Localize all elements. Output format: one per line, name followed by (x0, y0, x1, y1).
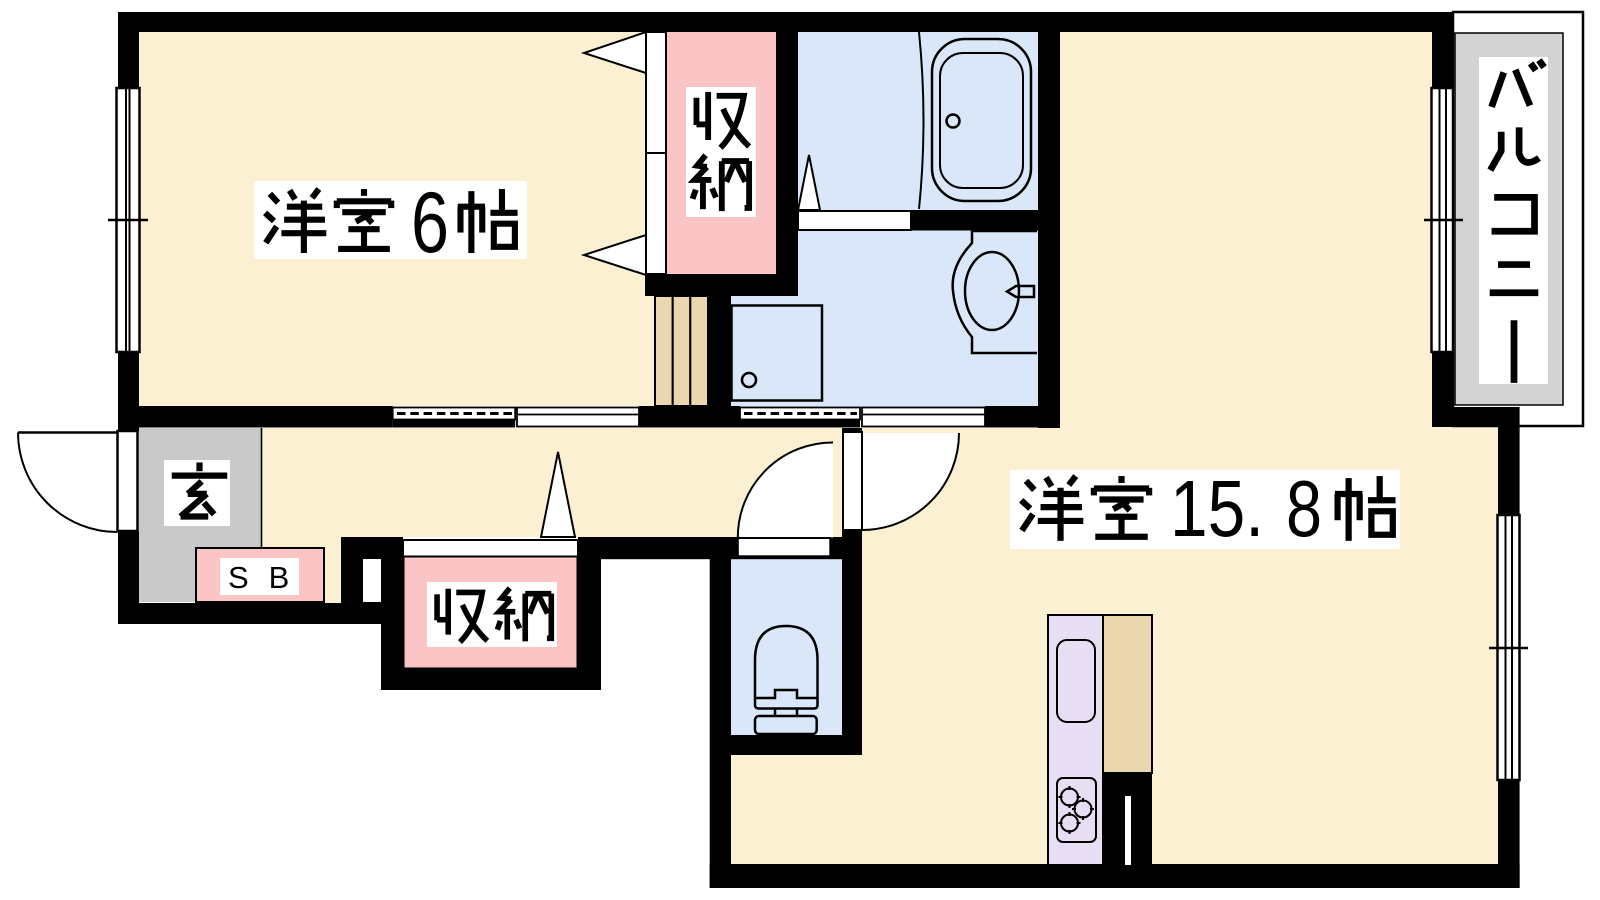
svg-text:8: 8 (1286, 464, 1322, 553)
svg-text:15.: 15. (1170, 464, 1264, 553)
svg-text:SB: SB (228, 560, 309, 595)
svg-text:6: 6 (411, 175, 449, 271)
